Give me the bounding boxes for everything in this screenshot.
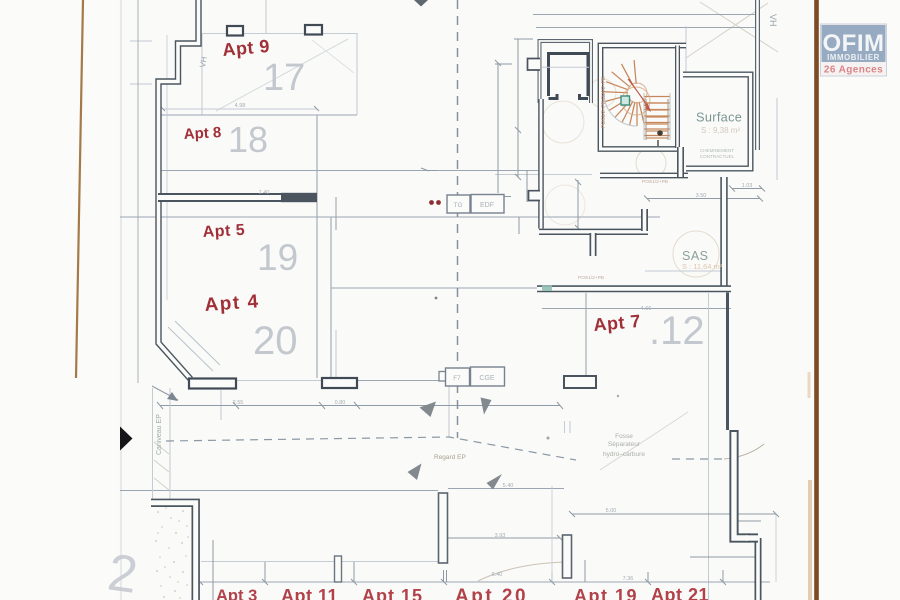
svg-text:Séparateur: Séparateur	[608, 441, 641, 448]
svg-text:5.00: 5.00	[606, 508, 617, 514]
svg-text:5.40: 5.40	[503, 483, 514, 489]
svg-text:Apt 7: Apt 7	[593, 311, 642, 335]
svg-text:SAS: SAS	[682, 249, 709, 263]
svg-text:.12: .12	[649, 309, 705, 353]
svg-text:18: 18	[228, 119, 268, 160]
svg-text:S : 9,38 m²: S : 9,38 m²	[701, 126, 740, 135]
svg-text:POS1/2+PB: POS1/2+PB	[642, 179, 668, 185]
svg-text:Surface: Surface	[696, 110, 742, 125]
svg-text:Apt 8: Apt 8	[183, 124, 221, 143]
svg-text:hydro–carbure: hydro–carbure	[603, 451, 645, 458]
svg-text:POS1/2+PB: POS1/2+PB	[578, 275, 604, 281]
svg-text:CHEMINEMENT: CHEMINEMENT	[700, 148, 734, 153]
svg-text:2.55: 2.55	[233, 400, 244, 406]
svg-text:Apt 20: Apt 20	[455, 586, 528, 600]
svg-text:Caniveau EP: Caniveau EP	[156, 414, 163, 455]
svg-text:20: 20	[253, 319, 298, 363]
svg-text:3.50: 3.50	[696, 193, 707, 199]
svg-text:1.40: 1.40	[259, 190, 270, 196]
svg-text:VH: VH	[768, 14, 778, 27]
svg-text:1.03: 1.03	[742, 183, 753, 189]
svg-text:TG: TG	[453, 202, 462, 209]
svg-text:Apt 3: Apt 3	[216, 587, 257, 600]
svg-text:26 Agences: 26 Agences	[824, 65, 883, 76]
svg-text:3.93: 3.93	[495, 533, 506, 539]
svg-text:EDF: EDF	[480, 202, 494, 209]
svg-text:0.80: 0.80	[335, 400, 346, 406]
svg-text:19: 19	[257, 237, 298, 278]
svg-text:Regard EP: Regard EP	[434, 454, 466, 461]
svg-text:6.40: 6.40	[492, 572, 503, 578]
svg-text:Apt 21: Apt 21	[651, 585, 709, 600]
svg-text:F7: F7	[453, 375, 461, 382]
svg-text:S : 11,64 m²: S : 11,64 m²	[682, 262, 723, 271]
svg-text:Apt 11: Apt 11	[281, 586, 338, 600]
svg-text:4.98: 4.98	[235, 103, 246, 109]
svg-text:CGE: CGE	[479, 375, 495, 382]
svg-text:Fosse: Fosse	[615, 433, 633, 440]
svg-text:7.36: 7.36	[623, 576, 634, 582]
svg-text:Apt 5: Apt 5	[202, 222, 245, 241]
svg-text:Apt 15: Apt 15	[362, 586, 423, 600]
svg-text:POS1/2+PB R04/2+PB: POS1/2+PB R04/2+PB	[601, 76, 607, 128]
svg-text:17: 17	[263, 57, 305, 99]
svg-text:Apt 4: Apt 4	[204, 291, 260, 316]
svg-text:IMMOBILIER: IMMOBILIER	[827, 53, 880, 62]
svg-text:CONTRACTUEL: CONTRACTUEL	[700, 154, 735, 159]
svg-text:Apt 19: Apt 19	[574, 586, 638, 600]
svg-text:4.66: 4.66	[641, 306, 652, 312]
